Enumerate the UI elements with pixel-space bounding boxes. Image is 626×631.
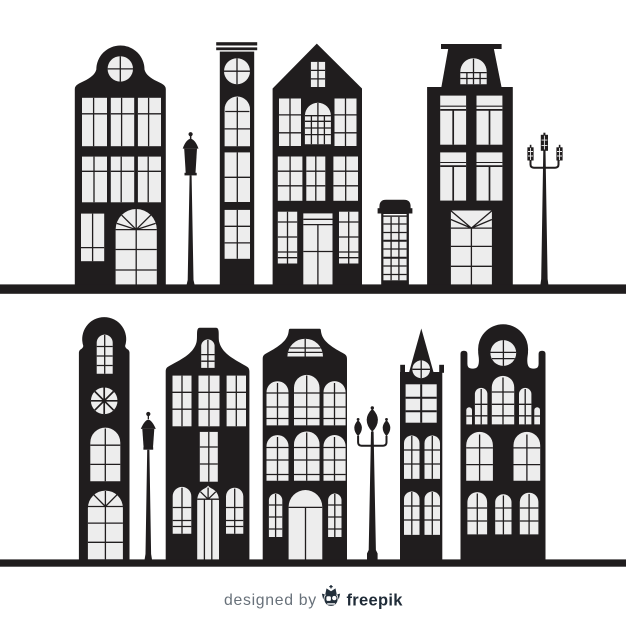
svg-text:freepik: freepik — [347, 591, 404, 609]
svg-text:designed by: designed by — [224, 592, 317, 609]
